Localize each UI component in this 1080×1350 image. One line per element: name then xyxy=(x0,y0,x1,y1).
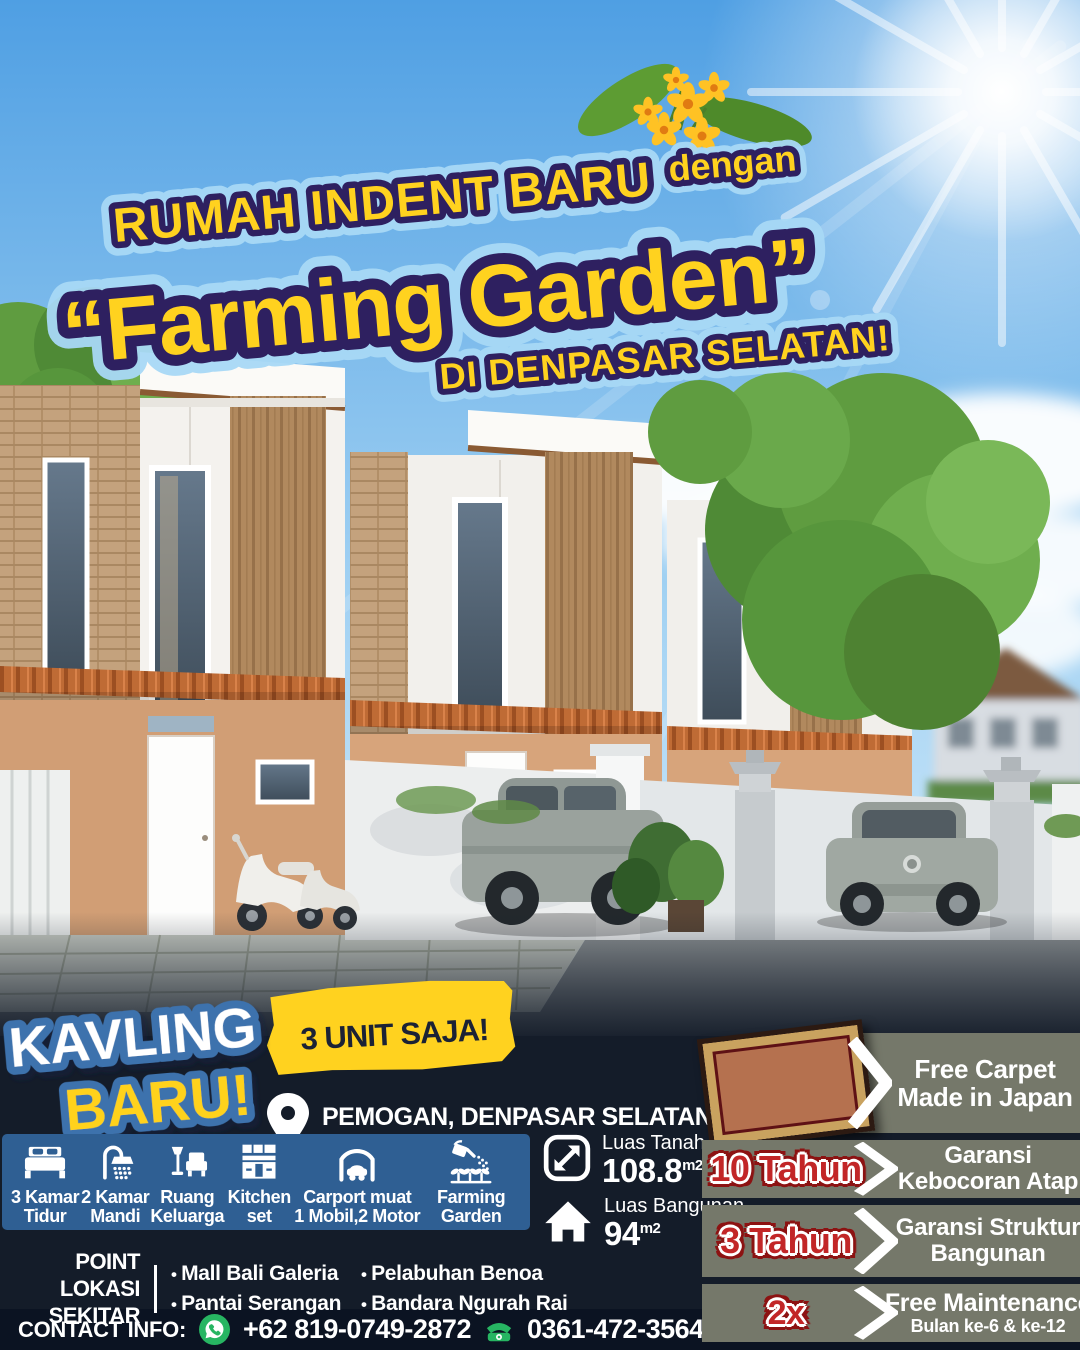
feature-label: set xyxy=(247,1206,272,1226)
nearby-column-2: Pelabuhan Benoa Bandara Ngurah Rai xyxy=(361,1259,529,1320)
feature-label: Garden xyxy=(441,1206,502,1226)
feature-bathrooms: 2 Kamar Mandi xyxy=(80,1139,150,1225)
kitchen-set-icon xyxy=(237,1139,281,1185)
feature-label: 2 Kamar xyxy=(81,1187,149,1207)
chevron-icon xyxy=(854,1208,898,1274)
feature-label: Carport muat xyxy=(303,1187,411,1207)
feature-carport: Carport muat 1 Mobil,2 Motor xyxy=(294,1139,420,1225)
nearby-item: Pelabuhan Benoa xyxy=(361,1259,529,1289)
feature-living-room: Ruang Keluarga xyxy=(150,1139,224,1225)
feature-label: Mandi xyxy=(90,1206,140,1226)
house-1 xyxy=(0,352,345,940)
bottom-fade xyxy=(0,912,1080,1045)
divider xyxy=(154,1265,157,1313)
chevron-icon xyxy=(854,1142,898,1195)
living-room-icon xyxy=(164,1139,210,1185)
benefit-row-roof-warranty: 10 Tahun Garansi Kebocoran Atap xyxy=(702,1140,1080,1198)
feature-label: Kitchen xyxy=(228,1187,291,1207)
benefit-text: Free Carpet Made in Japan xyxy=(894,1033,1076,1133)
building-area-icon xyxy=(542,1196,594,1248)
feature-label: 1 Mobil,2 Motor xyxy=(294,1206,420,1226)
feature-label: Tidur xyxy=(24,1206,67,1226)
nearby-title: POINT LOKASI SEKITAR xyxy=(18,1249,140,1329)
feature-farming-garden: Farming Garden xyxy=(420,1139,522,1225)
chevron-icon xyxy=(848,1037,892,1129)
feature-label: Ruang xyxy=(160,1187,214,1207)
nearby-item: Mall Bali Galeria xyxy=(171,1259,339,1289)
feature-label: Farming xyxy=(437,1187,505,1207)
farming-garden-icon xyxy=(447,1139,495,1185)
benefit-text: Free Maintenance Bulan ke-6 & ke-12 xyxy=(900,1284,1076,1342)
phone-number: 0361-472-3564 xyxy=(527,1314,704,1345)
benefit-text: Garansi Kebocoran Atap xyxy=(900,1140,1076,1198)
nearby-column-1: Mall Bali Galeria Pantai Serangan xyxy=(171,1259,339,1320)
spec-building-area: Luas Bangunan 94m2 xyxy=(542,1196,712,1252)
benefit-text: Garansi Struktur Bangunan xyxy=(900,1205,1076,1277)
benefit-tag: 2x xyxy=(702,1284,870,1342)
nearby-item: Pantai Serangan xyxy=(171,1289,339,1319)
nearby-points: POINT LOKASI SEKITAR Mall Bali Galeria P… xyxy=(18,1249,529,1329)
shower-icon xyxy=(93,1139,137,1185)
feature-kitchen: Kitchen set xyxy=(224,1139,294,1225)
spec-label: Luas Tanah xyxy=(602,1133,705,1154)
property-poster: RUMAH INDENT BARU dengan “Farming Garden… xyxy=(0,0,1080,1350)
nearby-item: Bandara Ngurah Rai xyxy=(361,1289,529,1319)
feature-bar: 3 Kamar Tidur 2 Kamar Mandi xyxy=(2,1134,530,1230)
spec-value: 108.8m2 xyxy=(602,1154,705,1189)
benefit-tag: 10 Tahun xyxy=(702,1140,870,1198)
feature-bedrooms: 3 Kamar Tidur xyxy=(10,1139,80,1225)
house-render-scene xyxy=(0,0,1080,1045)
bed-icon xyxy=(22,1139,68,1185)
land-area-icon xyxy=(542,1133,592,1183)
carport-icon xyxy=(334,1139,380,1185)
benefit-row-maintenance: 2x Free Maintenance Bulan ke-6 & ke-12 xyxy=(702,1284,1080,1342)
feature-label: Keluarga xyxy=(150,1206,224,1226)
benefit-row-carpet: Free Carpet Made in Japan xyxy=(702,1033,1080,1133)
benefit-tag: 3 Tahun xyxy=(702,1205,870,1277)
benefit-row-structure-warranty: 3 Tahun Garansi Struktur Bangunan xyxy=(702,1205,1080,1277)
feature-label: 3 Kamar xyxy=(11,1187,79,1207)
spec-land-area: Luas Tanah 108.8m2 xyxy=(542,1133,712,1189)
